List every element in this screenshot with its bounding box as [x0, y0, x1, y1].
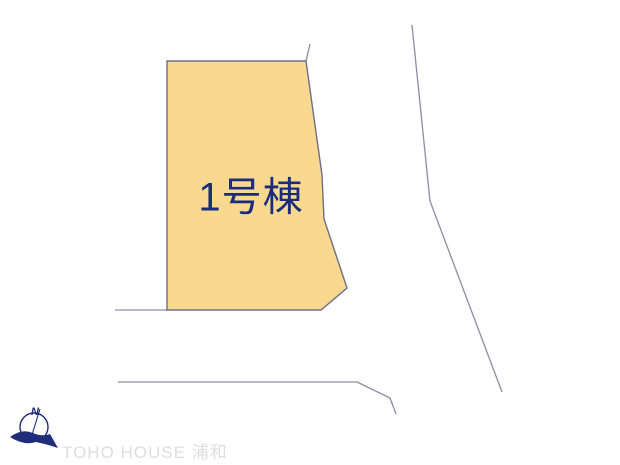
- compass-icon: N: [10, 406, 58, 448]
- boundary-spur-top-right: [306, 44, 310, 61]
- company-watermark: TOHO HOUSE 浦和: [62, 438, 228, 463]
- plot-diagram: N 1号棟 TOHO HOUSE 浦和: [0, 0, 620, 465]
- road-line-south: [118, 382, 396, 414]
- compass-bird-shape: [10, 431, 58, 448]
- lot-label: 1号棟: [198, 165, 303, 223]
- compass-north-label: N: [31, 406, 40, 418]
- road-line-east: [412, 25, 502, 392]
- lot-map-canvas: N: [0, 0, 620, 465]
